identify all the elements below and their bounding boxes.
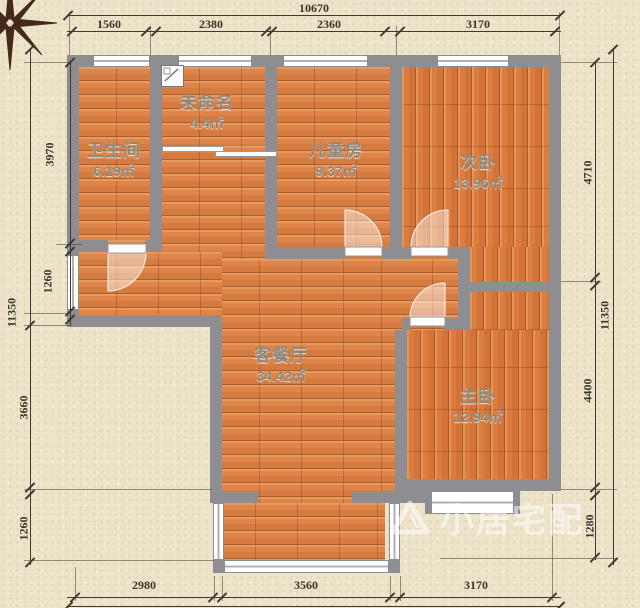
dim-label-right-seg: 1280 [583, 497, 598, 557]
wall-master-top-b [445, 318, 458, 330]
window-second-bedroom-top[interactable] [437, 55, 509, 67]
room-area: 9.37㎡ [286, 161, 386, 181]
room-master-bedroom-floor[interactable] [470, 292, 549, 330]
room-area: 12.94㎡ [428, 407, 528, 427]
wall-hall-bottom-a [210, 491, 258, 503]
room-name: 客餐厅 [231, 341, 331, 366]
dim-label-right-total: 11350 [598, 286, 613, 346]
watermark: 小居宅配 [388, 493, 584, 542]
door-threshold [411, 247, 448, 259]
room-label-bathroom: 卫生间 6.19㎡ [64, 136, 164, 181]
window-bathroom-top[interactable] [93, 55, 150, 67]
wall-right [549, 55, 561, 491]
dim-label-left-seg: 3660 [17, 378, 32, 438]
dim-label-right-seg: 4400 [581, 361, 596, 421]
wall-bedrooms-b [382, 247, 411, 259]
window-entry-left[interactable] [67, 255, 79, 310]
dim-label-top-total: 10670 [284, 1, 344, 16]
corridor-floor[interactable] [162, 146, 277, 259]
window-kids-top[interactable] [283, 55, 368, 67]
room-area: 34.42㎡ [231, 366, 331, 386]
wall-kids-right [390, 67, 402, 259]
room-label-unnamed: 未命名 4.4㎡ [157, 88, 257, 133]
room-name: 主卧 [428, 382, 528, 407]
dim-label-top-seg: 3170 [448, 17, 508, 32]
bay-corner [389, 560, 400, 573]
room-label-master-bedroom: 主卧 12.94㎡ [428, 382, 528, 427]
dimension-line [70, 62, 71, 325]
window-bay-bottom[interactable] [224, 560, 389, 573]
wall-bedrooms-c [448, 247, 470, 259]
sliding-door-panel[interactable] [215, 151, 277, 157]
dim-label-top-seg: 1560 [79, 17, 139, 32]
floor-plan-canvas: 卫生间 6.19㎡ 未命名 4.4㎡ 儿童房 9.37㎡ 次卧 13.96㎡ 客… [0, 0, 640, 608]
dim-label-top-seg: 2380 [181, 17, 241, 32]
room-name: 次卧 [428, 148, 528, 173]
dim-label-left-seg: 1260 [17, 499, 32, 559]
wall-bathroom-bottom-b [146, 240, 162, 252]
room-area: 6.19㎡ [64, 161, 164, 181]
room-area: 13.96㎡ [428, 173, 528, 193]
room-label-second-bedroom: 次卧 13.96㎡ [428, 148, 528, 193]
watermark-text: 小居宅配 [440, 493, 584, 542]
room-name: 未命名 [157, 88, 257, 113]
dim-label-bottom-seg: 2980 [114, 578, 174, 593]
dimension-line [613, 48, 614, 565]
watermark-logo-icon [388, 498, 432, 538]
wall-second-master [470, 282, 549, 292]
wall-bedrooms-a [277, 247, 345, 259]
dimension-line [67, 606, 561, 607]
bay-corner [213, 560, 224, 573]
wall-master-top-a [402, 318, 410, 330]
wall-master-bottom [395, 479, 561, 491]
wall-hallway-right [458, 259, 470, 330]
dim-label-right-seg: 4710 [581, 143, 596, 203]
dim-label-bottom-seg: 3560 [276, 578, 336, 593]
dim-label-left-total: 11350 [5, 283, 20, 343]
dim-label-top-seg: 2360 [299, 17, 359, 32]
room-name: 儿童房 [286, 136, 386, 161]
window-bay-left[interactable] [213, 503, 224, 560]
dim-label-left-seg: 1260 [41, 252, 56, 312]
room-area: 4.4㎡ [157, 113, 257, 133]
flue-icon [161, 65, 184, 87]
room-name: 卫生间 [64, 136, 164, 161]
room-label-kids: 儿童房 9.37㎡ [286, 136, 386, 181]
compass-icon [0, 0, 70, 88]
wall-hall-left [210, 315, 222, 503]
dimension-line [67, 597, 561, 598]
wall-living-master [395, 330, 407, 491]
wall-bathroom-bottom-a [79, 240, 108, 252]
entry-floor[interactable] [79, 252, 222, 315]
door-threshold [108, 240, 146, 252]
wall-unnamed-right [265, 67, 277, 259]
door-threshold [345, 247, 382, 259]
dim-label-bottom-seg: 3170 [446, 578, 506, 593]
dim-label-left-seg: 3970 [43, 125, 58, 185]
room-label-living-dining: 客餐厅 34.42㎡ [231, 341, 331, 386]
window-unnamed-top[interactable] [178, 55, 252, 67]
wall-entry-bottom [67, 315, 222, 327]
